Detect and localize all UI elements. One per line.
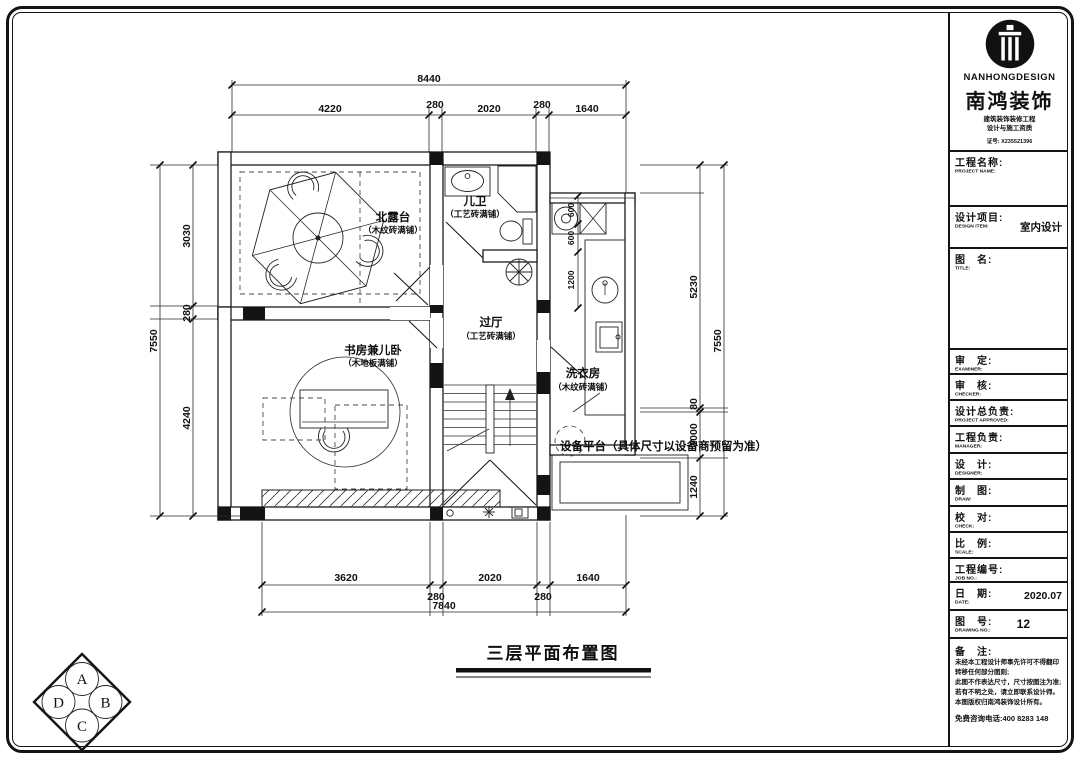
bay-window-seat	[262, 490, 500, 507]
patio-umbrella-icon	[252, 172, 383, 303]
dim-label: 1200	[566, 270, 576, 289]
dim-label: 3620	[334, 572, 358, 584]
field-label-cn: 图 名:	[955, 251, 1064, 266]
field-label-cn: 备 注:	[955, 643, 1063, 658]
dimensions-top: 8440 4220 280 2020 280 1640	[229, 73, 630, 193]
dim-label: 1240	[688, 475, 700, 499]
field-label-en: JOB NO.:	[955, 576, 1044, 581]
room-name-hall: 过厅	[480, 315, 503, 329]
toilet-icon	[500, 219, 532, 244]
brand-name-cn: 南鸿装饰	[966, 85, 1054, 114]
field-label-cn: 工程名称:	[955, 154, 1064, 169]
bathroom-fixtures	[445, 166, 536, 285]
field-design-item: 设计项目: DESIGN ITEM: 室内设计	[950, 207, 1068, 249]
company-logo-section: NANHONGDESIGN 南鸿装饰 建筑装饰装修工程 设计与施工资质 证号: …	[950, 12, 1068, 152]
room-finish-kids-bath: （工艺砖满铺）	[445, 209, 505, 219]
compass-letter-d: D	[53, 696, 64, 712]
room-finish-laundry: （木纹砖满铺）	[553, 382, 613, 392]
room-finish-study: （木地板满铺）	[343, 358, 403, 368]
dim-label: 4220	[318, 103, 342, 115]
field-label-cn: 工程负责:	[955, 429, 1064, 444]
terrace-furniture	[240, 168, 420, 305]
field-label-en: DRAW:	[955, 497, 1044, 502]
dimensions-right: 7550 5230 80 1000 1240	[640, 162, 728, 520]
field-label-en: CHECK:	[955, 524, 1044, 529]
remark-line: 此图不作表达尺寸，尺寸按图注为准;	[955, 678, 1063, 688]
field-proofreader: 校 对: CHECK:	[950, 507, 1068, 533]
field-label-cn: 工程编号:	[955, 561, 1064, 576]
brand-qualification-line1: 建筑装饰装修工程	[984, 116, 1036, 125]
plan-title: 三层平面布置图	[487, 643, 620, 663]
field-designer: 设 计: DESIGNER:	[950, 454, 1068, 480]
room-finish-terrace: （木纹砖满铺）	[363, 225, 423, 235]
dim-label: 1640	[576, 572, 600, 584]
field-drafter: 制 图: DRAW:	[950, 480, 1068, 507]
company-logo-icon	[984, 18, 1036, 70]
field-label-en: MANAGER:	[955, 444, 1044, 449]
remark-line: 若有不明之处，请立即联系设计师。	[955, 688, 1063, 698]
field-label-cn: 设 计:	[955, 456, 1064, 471]
field-chief-designer: 设计总负责: PROJECT APPROVED:	[950, 401, 1068, 427]
field-project-manager: 工程负责: MANAGER:	[950, 427, 1068, 454]
patio-chair-icon	[259, 258, 298, 297]
field-label-en: PROJECT APPROVED:	[955, 418, 1044, 423]
dim-label: 600	[566, 203, 576, 217]
room-name-terrace: 北露台	[376, 210, 411, 224]
remark-line: 未经本工程设计师事先许可不得翻印转移任何部分图则;	[955, 658, 1063, 678]
field-examiner: 审 定: EXAMINER:	[950, 350, 1068, 375]
dimensions-bottom: 3620 280 2020 280 1640 7840	[259, 515, 630, 616]
field-title: 图 名: TITLE:	[950, 249, 1068, 350]
field-label-cn: 制 图:	[955, 482, 1064, 497]
brand-name-en: NANHONGDESIGN	[963, 72, 1055, 83]
dim-label: 4240	[181, 406, 193, 430]
compass-letter-b: B	[100, 696, 110, 712]
room-name-kids-bath: 儿卫	[463, 195, 487, 208]
drawing-sheet: 8440 4220 280 2020 280 1640 7550 3030 28…	[0, 0, 1080, 759]
dim-label: 80	[688, 398, 700, 410]
dim-label: 1640	[575, 103, 599, 115]
dim-label: 280	[534, 591, 552, 603]
field-checker: 审 核: CHECKER:	[950, 375, 1068, 401]
compass-letter-a: A	[77, 672, 88, 688]
field-label-cn: 审 核:	[955, 377, 1064, 392]
dim-label: 5230	[688, 275, 700, 299]
field-date: 日 期: DATE: 2020.07	[950, 583, 1068, 611]
remark-line: 本图版权归南鸿装饰设计所有。	[955, 698, 1063, 708]
dim-label: 3030	[181, 224, 193, 248]
shower-icon	[498, 166, 536, 212]
square-sink-icon	[596, 322, 622, 352]
plant-icon	[506, 259, 532, 285]
title-block: NANHONGDESIGN 南鸿装饰 建筑装饰装修工程 设计与施工资质 证号: …	[948, 12, 1068, 747]
dim-label: 2020	[478, 572, 502, 584]
compass-letter-c: C	[77, 719, 87, 735]
patio-chair-icon	[284, 168, 321, 200]
dim-label: 7550	[712, 329, 724, 353]
room-name-study: 书房兼儿卧	[344, 343, 402, 357]
dim-label: 280	[426, 99, 444, 111]
floor-plan-canvas: 8440 4220 280 2020 280 1640 7550 3030 28…	[0, 0, 948, 759]
walls	[218, 152, 688, 520]
drawing-title: 三层平面布置图	[456, 643, 651, 677]
service-hotline: 免费咨询电话:400 8283 148	[955, 713, 1063, 724]
field-project-name: 工程名称: PROJECT NAME:	[950, 152, 1068, 207]
field-label-en: DESIGNER:	[955, 471, 1044, 476]
field-label-cn: 图 号:	[955, 613, 1064, 628]
dim-label: 7840	[432, 600, 456, 612]
doors	[390, 222, 586, 379]
compass: A B C D	[34, 654, 130, 750]
field-label-en: CHECKER:	[955, 392, 1044, 397]
room-finish-hall: （工艺砖满铺）	[461, 331, 521, 341]
dimensions-laundry-interior: 600 600 1200	[566, 193, 582, 312]
brand-qualification-line2: 设计与施工资质	[984, 125, 1036, 134]
room-name-laundry: 洗衣房	[566, 366, 601, 380]
field-label-en: TITLE:	[955, 266, 1044, 271]
field-label-cn: 比 例:	[955, 535, 1064, 550]
field-job-no: 工程编号: JOB NO.:	[950, 559, 1068, 583]
brand-license-no: 证号: X235521396	[987, 137, 1033, 145]
field-value: 室内设计	[1020, 220, 1062, 235]
field-label-en: PROJECT NAME:	[955, 169, 1044, 174]
field-value-drawing-no: 12	[1017, 617, 1030, 631]
desk-chair-icon	[319, 428, 350, 452]
field-remarks: 备 注: 未经本工程设计师事先许可不得翻印转移任何部分图则; 此图不作表达尺寸，…	[950, 639, 1068, 747]
field-drawing-no: 图 号: DRAWING NO.: 12	[950, 611, 1068, 639]
dim-label: 280	[181, 304, 193, 322]
equipment-note: 设备平台（具体尺寸以设备商预留为准）	[560, 439, 767, 453]
field-value-date: 2020.07	[1024, 590, 1062, 602]
field-label-cn: 校 对:	[955, 509, 1064, 524]
dim-label: 8440	[417, 73, 441, 85]
round-sink-icon	[592, 277, 618, 303]
field-label-en: SCALE:	[955, 550, 1044, 555]
field-label-cn: 审 定:	[955, 352, 1064, 367]
dim-label: 600	[566, 231, 576, 245]
stair-up-arrow	[505, 388, 515, 400]
field-label-en: DRAWING NO.:	[955, 628, 1044, 633]
dim-label: 280	[533, 99, 551, 111]
field-label-en: EXAMINER:	[955, 367, 1044, 372]
field-label-cn: 设计总负责:	[955, 403, 1064, 418]
field-scale: 比 例: SCALE:	[950, 533, 1068, 559]
dim-label: 7550	[148, 329, 160, 353]
dim-label: 2020	[477, 103, 501, 115]
